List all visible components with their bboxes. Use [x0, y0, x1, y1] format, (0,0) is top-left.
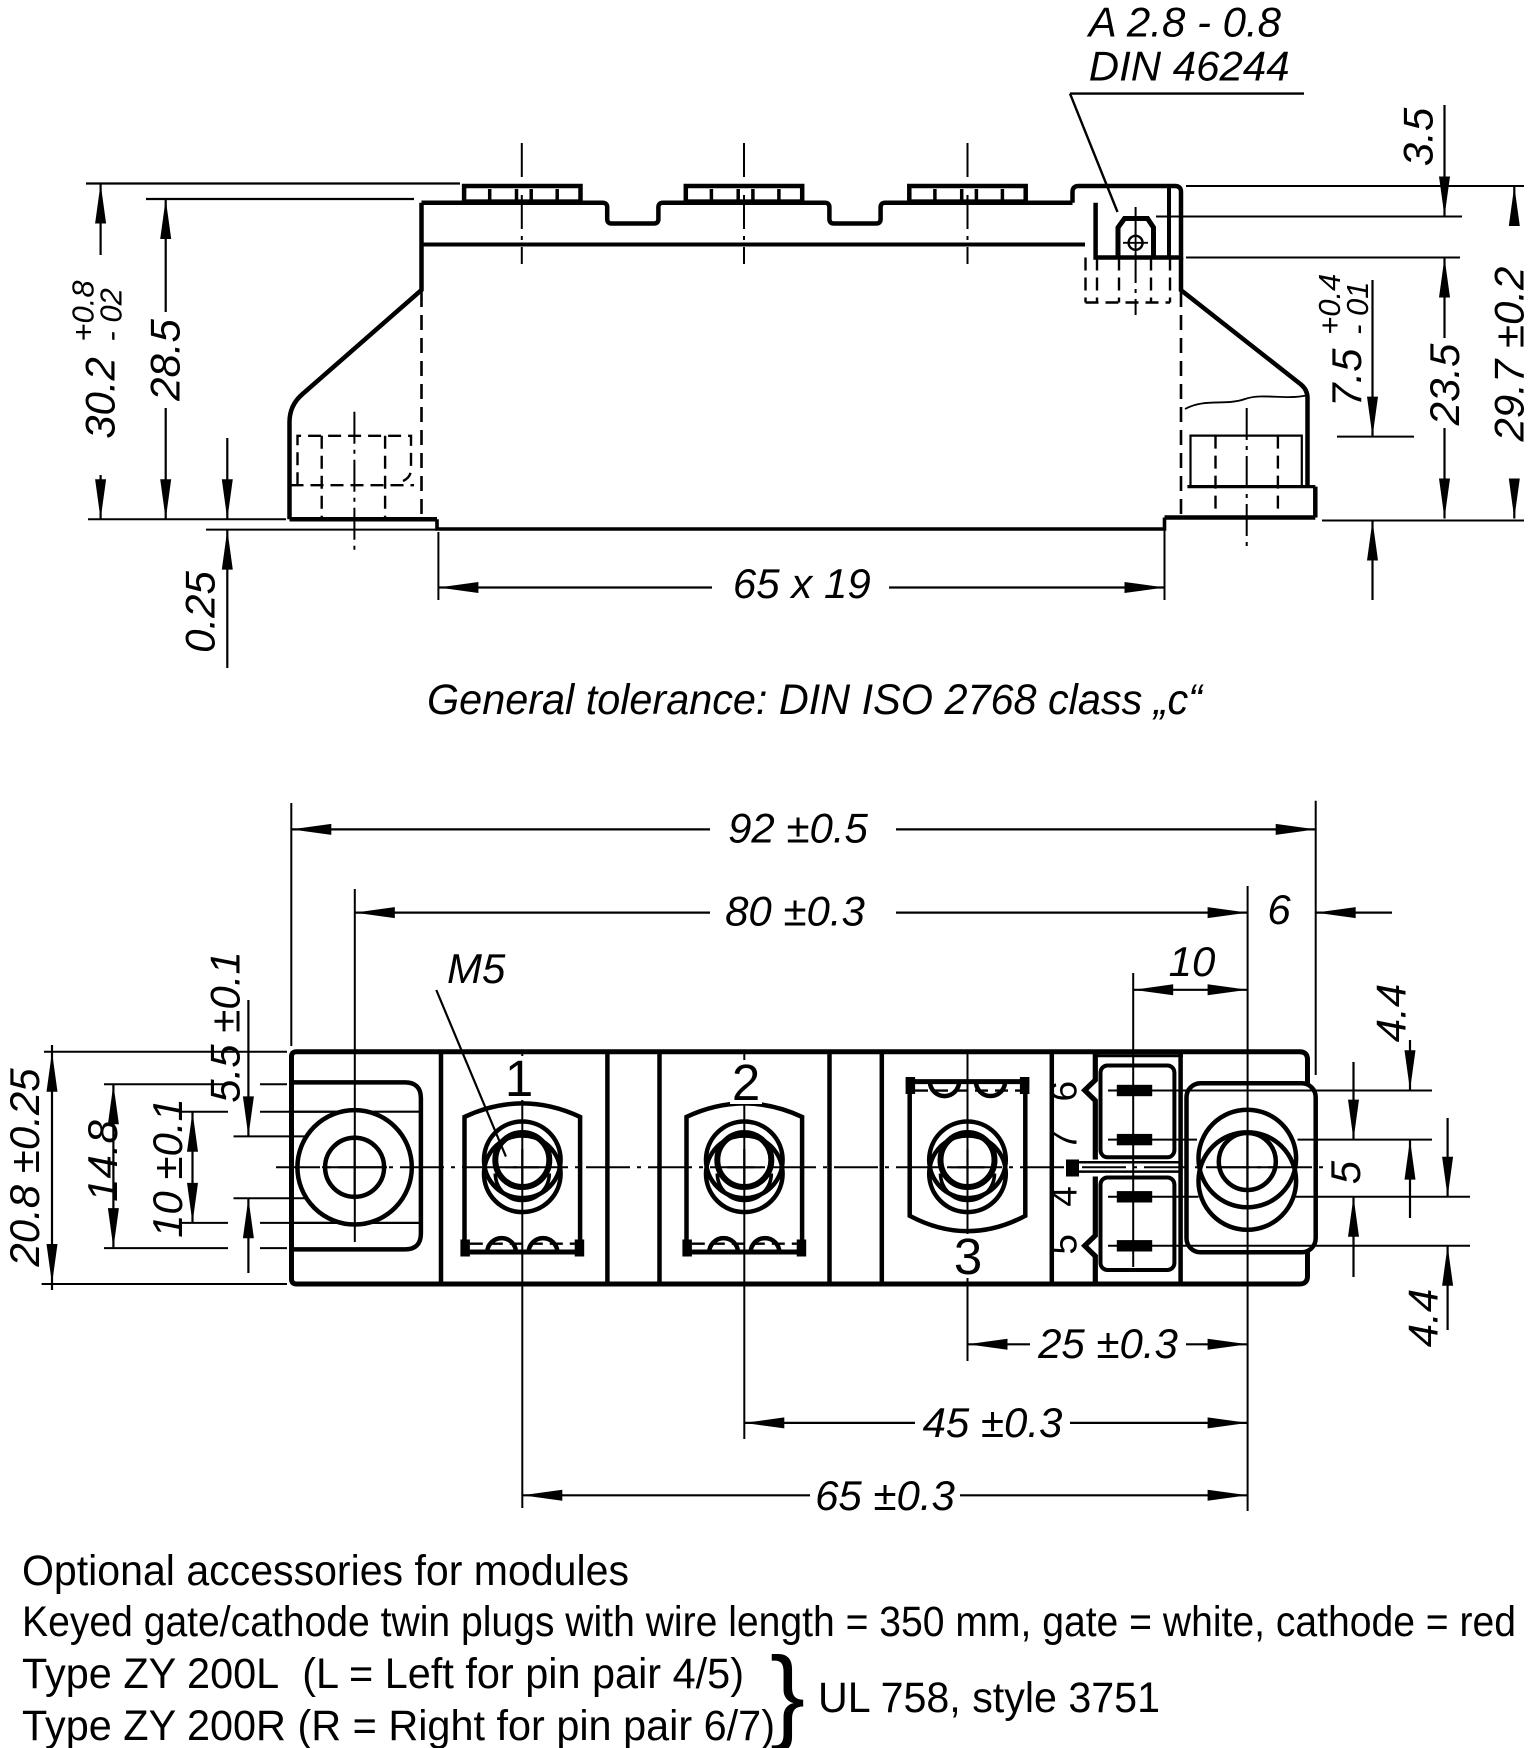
- svg-text:3.5: 3.5: [1395, 107, 1442, 166]
- svg-text:3: 3: [954, 1228, 982, 1285]
- svg-text:65 ±0.3: 65 ±0.3: [815, 1472, 955, 1519]
- svg-text:6: 6: [1044, 1081, 1085, 1102]
- svg-text:2: 2: [732, 1054, 760, 1111]
- svg-text:4.4: 4.4: [1368, 984, 1415, 1042]
- svg-text:14.8: 14.8: [79, 1119, 126, 1201]
- svg-text:- 02: - 02: [94, 288, 129, 341]
- svg-text:7: 7: [1044, 1130, 1085, 1151]
- svg-text:80 ±0.3: 80 ±0.3: [725, 888, 865, 935]
- svg-text:7.5: 7.5: [1323, 348, 1370, 407]
- svg-text:General tolerance: DIN ISO 276: General tolerance: DIN ISO 2768 class „c…: [427, 676, 1205, 724]
- svg-text:30.2: 30.2: [76, 357, 123, 439]
- svg-text:1: 1: [505, 1050, 533, 1107]
- svg-text:0.25: 0.25: [176, 570, 223, 652]
- svg-text:DIN 46244: DIN 46244: [1089, 43, 1290, 90]
- svg-text:Keyed gate/cathode twin plugs: Keyed gate/cathode twin plugs with wire …: [22, 1598, 1516, 1646]
- svg-text:20.8 ±0.25: 20.8 ±0.25: [1, 1068, 48, 1268]
- svg-text:Type ZY 200L (L = Left for pi: Type ZY 200L (L = Left for pin pair 4/5): [22, 1650, 744, 1698]
- svg-text:6: 6: [1267, 886, 1291, 933]
- svg-text:4: 4: [1044, 1186, 1085, 1207]
- svg-text:A 2.8 - 0.8: A 2.8 - 0.8: [1086, 0, 1282, 46]
- svg-text:Optional accessories for modul: Optional accessories for modules: [22, 1547, 629, 1595]
- svg-text:65 x 19: 65 x 19: [733, 560, 871, 607]
- svg-text:5.5 ±0.1: 5.5 ±0.1: [201, 951, 248, 1103]
- svg-text:45 ±0.3: 45 ±0.3: [923, 1399, 1063, 1446]
- svg-text:10 ±0.1: 10 ±0.1: [144, 1098, 191, 1238]
- svg-text:92 ±0.5: 92 ±0.5: [728, 805, 868, 852]
- svg-text:4.4: 4.4: [1400, 1289, 1447, 1347]
- svg-text:UL 758, style 3751: UL 758, style 3751: [818, 1674, 1160, 1722]
- svg-text:M5: M5: [447, 945, 506, 992]
- svg-text:10: 10: [1169, 938, 1216, 985]
- svg-text:5: 5: [1044, 1234, 1085, 1255]
- svg-text:- 01: - 01: [1340, 281, 1375, 334]
- svg-text:Type ZY 200R (R = Right for pi: Type ZY 200R (R = Right for pin pair 6/7…: [22, 1702, 775, 1748]
- svg-text:}: }: [770, 1636, 805, 1748]
- svg-text:5: 5: [1322, 1160, 1369, 1184]
- svg-text:28.5: 28.5: [142, 318, 189, 401]
- svg-text:29.7 ±0.2: 29.7 ±0.2: [1486, 267, 1533, 443]
- svg-text:25 ±0.3: 25 ±0.3: [1037, 1320, 1178, 1367]
- svg-text:23.5: 23.5: [1421, 343, 1468, 426]
